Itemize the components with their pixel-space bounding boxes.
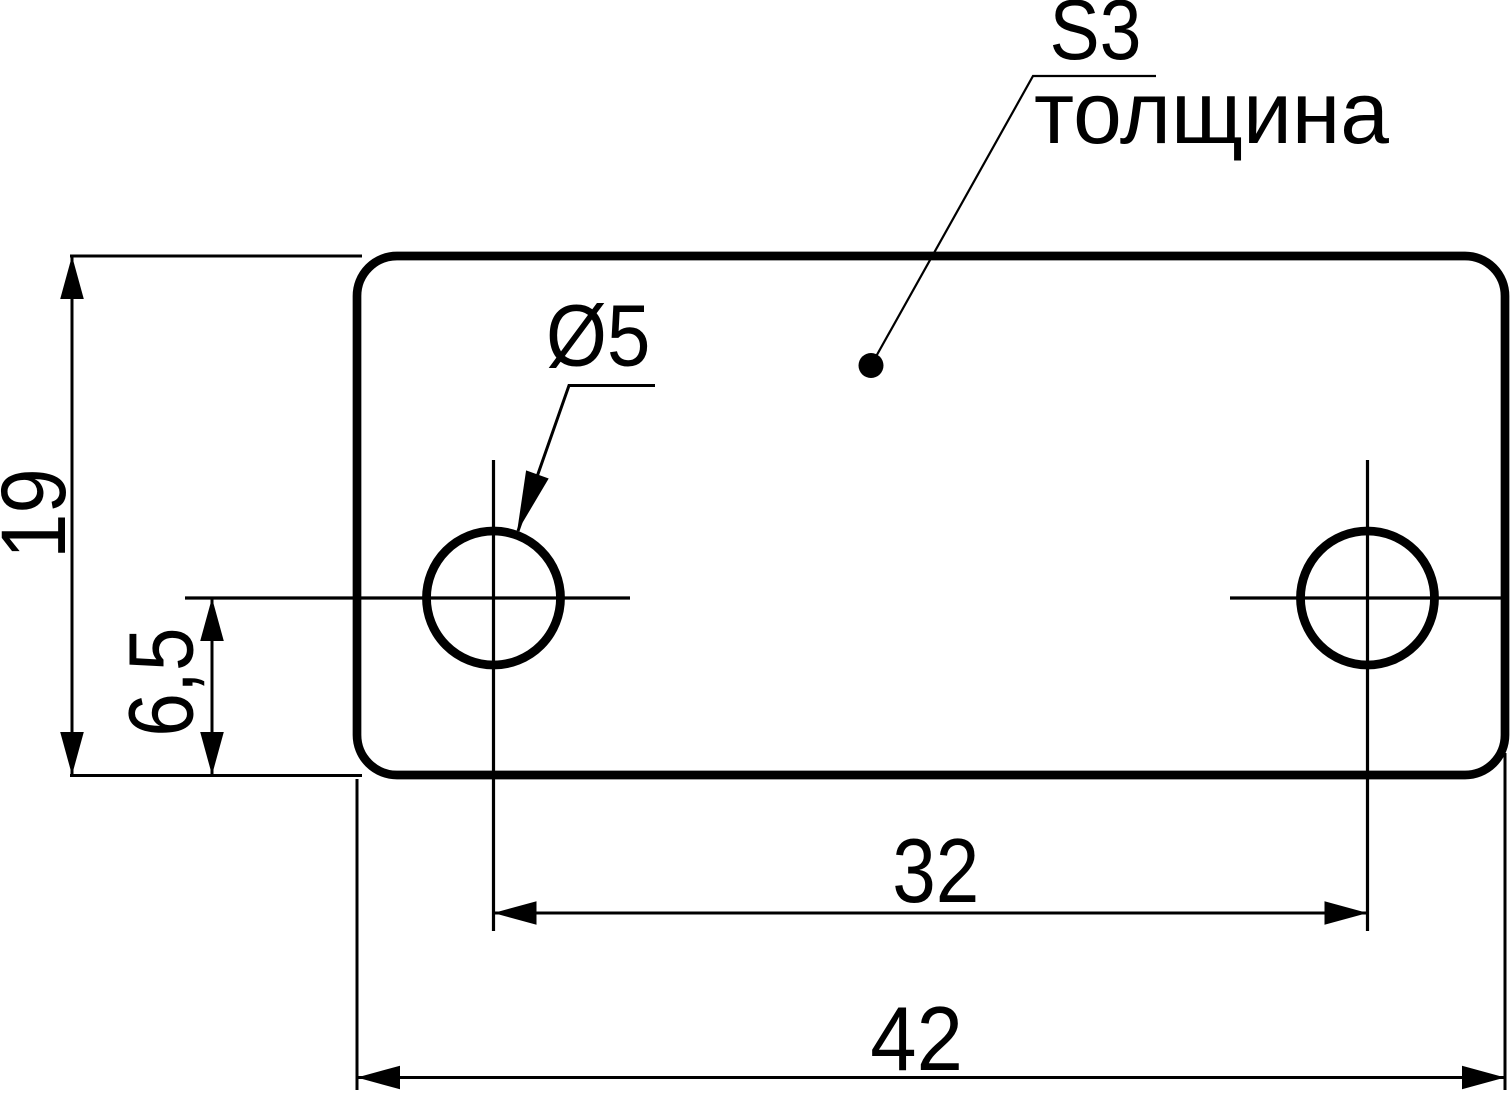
svg-text:32: 32 <box>892 819 979 921</box>
svg-text:Ø5: Ø5 <box>546 287 650 385</box>
svg-text:19: 19 <box>0 468 85 559</box>
svg-text:42: 42 <box>870 989 963 1090</box>
svg-text:6,5: 6,5 <box>111 627 213 736</box>
svg-text:толщина: толщина <box>1034 64 1389 162</box>
